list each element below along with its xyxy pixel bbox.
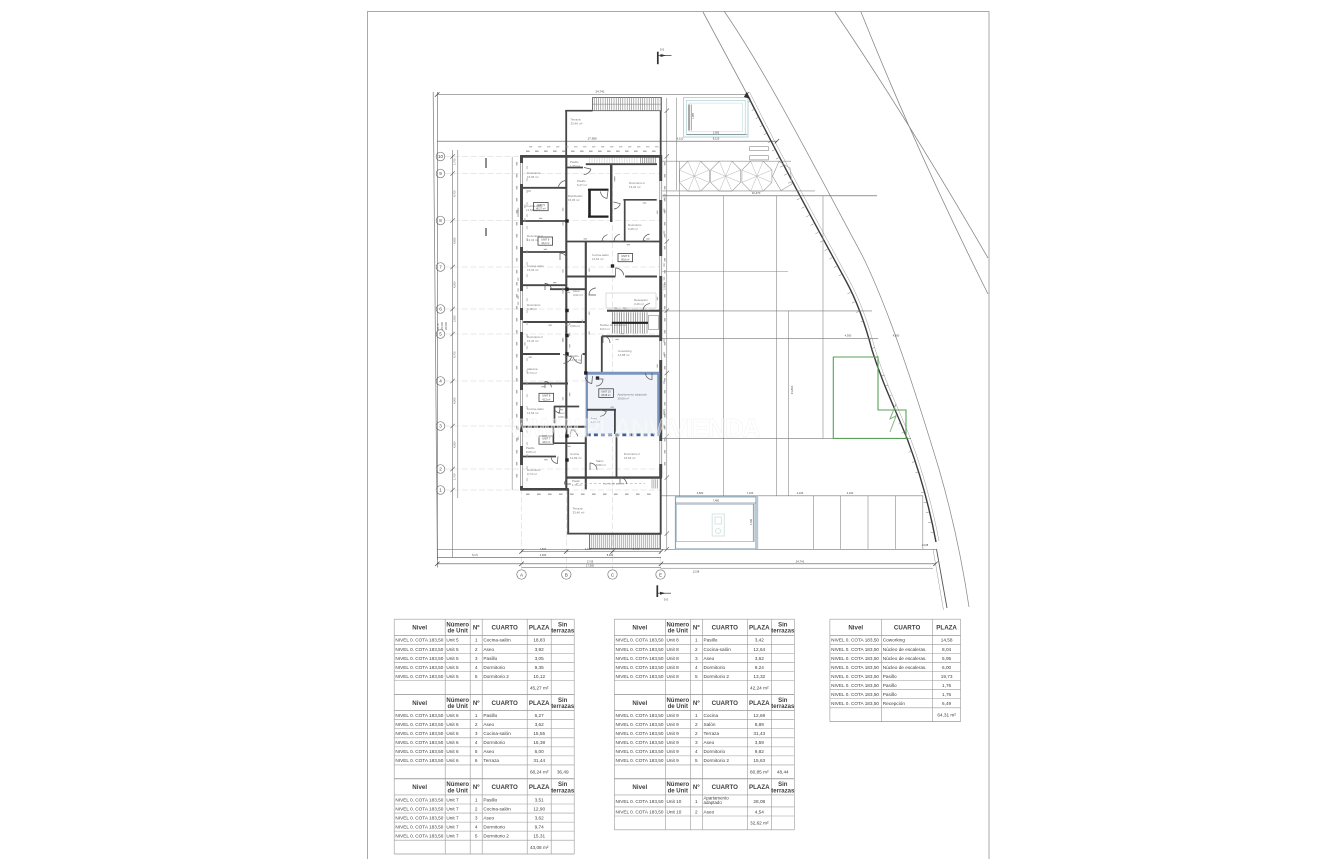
svg-text:de Unit: de Unit [668,629,688,635]
svg-text:NIVEL 0. COTA 183,50: NIVEL 0. COTA 183,50 [395,722,443,727]
svg-text:PLAZA: PLAZA [529,700,550,707]
svg-text:31,44: 31,44 [533,758,545,763]
svg-text:UNIT 5: UNIT 5 [537,203,546,207]
svg-text:3,62: 3,62 [535,722,545,727]
svg-text:8,04: 8,04 [942,647,952,652]
svg-text:15,31: 15,31 [533,833,545,838]
svg-text:Nº: Nº [693,784,700,791]
svg-text:9,35: 9,35 [535,665,545,670]
svg-text:8,89: 8,89 [755,722,765,727]
svg-text:24,741: 24,741 [595,90,605,94]
svg-text:1: 1 [695,713,698,718]
svg-text:2: 2 [695,731,698,736]
svg-text:64,31 m²: 64,31 m² [937,713,956,718]
svg-text:3,42: 3,42 [755,638,765,643]
svg-text:4,300: 4,300 [845,333,852,337]
svg-text:terrazas: terrazas [551,629,575,635]
svg-text:3: 3 [439,424,442,429]
svg-text:NIVEL 0. COTA 183,50: NIVEL 0. COTA 183,50 [395,674,443,679]
svg-text:1,700: 1,700 [453,158,457,165]
svg-text:44,2 m²: 44,2 m² [541,242,549,245]
svg-text:Núcleo de escaleras.: Núcleo de escaleras. [883,647,927,652]
svg-text:4: 4 [695,665,698,670]
svg-text:13,32 m²: 13,32 m² [629,185,640,189]
svg-text:Unit 6: Unit 6 [446,722,459,727]
svg-text:Aseo: Aseo [483,749,494,754]
svg-text:Unit 9: Unit 9 [667,722,680,727]
svg-text:UNIT 9: UNIT 9 [621,254,630,258]
svg-text:Unit 9: Unit 9 [667,731,680,736]
svg-text:15,05 m²: 15,05 m² [568,198,579,202]
svg-text:12,69: 12,69 [753,713,765,718]
svg-text:4,300: 4,300 [540,553,547,557]
svg-text:6,110: 6,110 [677,136,684,140]
svg-text:Pasillo: Pasillo [483,713,497,718]
svg-text:5: 5 [695,758,698,763]
svg-text:NIVEL 0. COTA 183,50: NIVEL 0. COTA 183,50 [616,713,664,718]
svg-text:Nº: Nº [473,625,480,632]
svg-text:Sin: Sin [778,782,788,788]
svg-text:42,2 m²: 42,2 m² [542,398,550,401]
svg-text:CUARTO: CUARTO [712,784,739,791]
svg-text:1: 1 [475,797,478,802]
svg-text:8,89 m²: 8,89 m² [596,463,606,467]
svg-text:15,63: 15,63 [753,758,765,763]
svg-text:2: 2 [475,722,478,727]
svg-text:NIVEL 0. COTA 183,50: NIVEL 0. COTA 183,50 [831,674,879,679]
svg-text:12,58: 12,58 [693,569,700,573]
svg-text:45,27 m²: 45,27 m² [530,685,549,690]
svg-text:6,49: 6,49 [942,701,952,706]
svg-text:Aseo: Aseo [704,656,715,661]
svg-text:12,69 m²: 12,69 m² [570,456,581,460]
svg-text:NIVEL 0. COTA 183,50: NIVEL 0. COTA 183,50 [395,749,443,754]
svg-text:5: 5 [475,674,478,679]
svg-text:Unit 9: Unit 9 [667,740,680,745]
svg-text:UNIT 6: UNIT 6 [541,237,550,241]
svg-text:7,480: 7,480 [713,500,720,503]
svg-text:Aseo: Aseo [483,815,494,820]
svg-text:Número: Número [446,623,469,629]
svg-text:Unit 5: Unit 5 [446,647,459,652]
svg-text:Unit 7: Unit 7 [446,806,459,811]
svg-text:45,27 m²: 45,27 m² [536,208,546,211]
svg-text:4: 4 [439,379,442,384]
svg-text:Dormitorio: Dormitorio [483,824,505,829]
svg-text:33,46 m²: 33,46 m² [573,510,585,514]
svg-text:15,06 m²: 15,06 m² [527,175,538,179]
svg-text:9,74: 9,74 [535,824,545,829]
svg-text:NIVEL 0. COTA 183,50: NIVEL 0. COTA 183,50 [395,638,443,643]
svg-text:4,500: 4,500 [453,397,457,404]
svg-text:28,08: 28,08 [753,799,765,804]
svg-text:4,500: 4,500 [697,491,704,495]
svg-text:4,54: 4,54 [755,809,765,814]
svg-text:Unit 5: Unit 5 [446,656,459,661]
svg-text:Terraza: Terraza [704,731,720,736]
svg-text:adaptado: adaptado [704,800,723,805]
svg-text:1,76: 1,76 [942,683,952,688]
svg-text:24,741: 24,741 [796,559,805,563]
svg-text:Unit 5: Unit 5 [446,665,459,670]
svg-text:3,62 m²: 3,62 m² [573,293,583,297]
svg-text:B: B [565,572,568,577]
svg-text:Pasillo: Pasillo [883,674,897,679]
svg-text:1,995: 1,995 [692,112,695,119]
svg-text:14,58 m²: 14,58 m² [618,353,629,357]
svg-text:1: 1 [475,638,478,643]
svg-text:NIVEL 0. COTA 183,50: NIVEL 0. COTA 183,50 [395,815,443,820]
svg-text:NIVEL 0. COTA 183,50: NIVEL 0. COTA 183,50 [616,722,664,727]
svg-text:NIVEL 0. COTA 183,50: NIVEL 0. COTA 183,50 [616,638,664,643]
svg-text:PLAZA: PLAZA [749,784,770,791]
svg-text:NIVEL 0. COTA 183,50: NIVEL 0. COTA 183,50 [831,665,879,670]
svg-text:8,400: 8,400 [607,553,614,557]
svg-text:Salón: Salón [704,722,716,727]
svg-text:Dormitorio: Dormitorio [704,749,726,754]
svg-text:Sin: Sin [778,623,788,629]
svg-text:5: 5 [695,674,698,679]
svg-text:Pasillo: Pasillo [883,683,897,688]
svg-text:NIVEL 0. COTA 183,50: NIVEL 0. COTA 183,50 [395,731,443,736]
svg-text:NIVEL 0. COTA 183,50: NIVEL 0. COTA 183,50 [616,809,664,814]
svg-text:Nivel: Nivel [848,625,863,632]
svg-text:Unit 8: Unit 8 [667,656,680,661]
svg-text:Dormitorio 2: Dormitorio 2 [704,758,730,763]
svg-text:Unit 10: Unit 10 [667,799,682,804]
svg-text:Unit 8: Unit 8 [667,674,680,679]
svg-text:13,32 m²: 13,32 m² [527,238,538,242]
svg-text:1: 1 [439,488,442,493]
svg-text:4,700: 4,700 [453,351,457,358]
svg-text:Terraza: Terraza [483,758,499,763]
svg-text:Dormitorio: Dormitorio [704,665,726,670]
svg-text:NIVEL 0. COTA 183,50: NIVEL 0. COTA 183,50 [616,674,664,679]
svg-text:Número: Número [446,782,469,788]
svg-text:1: 1 [475,713,478,718]
svg-text:Aseo: Aseo [704,809,715,814]
svg-text:3,05: 3,05 [535,656,545,661]
svg-text:9,82: 9,82 [755,749,765,754]
svg-text:4,500: 4,500 [893,333,900,337]
svg-text:9: 9 [439,171,442,176]
svg-text:2,100: 2,100 [847,491,854,495]
svg-text:Cocina-salón: Cocina-salón [483,638,511,643]
svg-text:NIVEL 0. COTA 183,50: NIVEL 0. COTA 183,50 [831,638,879,643]
svg-text:Núcleo de escaleras.: Núcleo de escaleras. [883,665,927,670]
svg-text:WWW.PLANVIVIENDA: WWW.PLANVIVIENDA [509,413,761,443]
svg-text:Nivel: Nivel [632,700,647,707]
svg-text:8,05 m²: 8,05 m² [526,450,536,454]
svg-text:3: 3 [475,731,478,736]
svg-text:6: 6 [439,307,442,312]
svg-text:Pasillo: Pasillo [483,656,497,661]
svg-text:Dormitorio: Dormitorio [483,665,505,670]
svg-text:CUARTO: CUARTO [712,700,739,707]
svg-text:4: 4 [475,824,478,829]
svg-text:Número: Número [666,782,689,788]
svg-text:29,546: 29,546 [440,322,444,330]
svg-text:1,76: 1,76 [942,692,952,697]
svg-text:8,110: 8,110 [713,136,720,140]
svg-text:15,55: 15,55 [533,731,545,736]
svg-text:Unit 6: Unit 6 [446,740,459,745]
svg-text:Unit 7: Unit 7 [446,833,459,838]
svg-text:NIVEL 0. COTA 183,50: NIVEL 0. COTA 183,50 [616,647,664,652]
svg-text:10: 10 [438,154,444,159]
svg-text:4,650: 4,650 [453,237,457,244]
svg-text:NIVEL 0. COTA 183,50: NIVEL 0. COTA 183,50 [616,749,664,754]
svg-text:5-5: 5-5 [664,598,668,602]
svg-text:de Unit: de Unit [448,788,468,794]
svg-text:Nivel: Nivel [632,625,647,632]
svg-text:3,900: 3,900 [713,132,720,135]
svg-text:3: 3 [695,740,698,745]
svg-text:14,73 m²: 14,73 m² [570,358,581,362]
svg-text:80,85 m²: 80,85 m² [750,770,769,775]
svg-text:3,59: 3,59 [755,740,765,745]
svg-text:NIVEL 0. COTA 183,50: NIVEL 0. COTA 183,50 [616,665,664,670]
svg-text:2,100: 2,100 [797,491,804,495]
svg-text:6: 6 [475,758,478,763]
svg-text:terrazas: terrazas [551,788,575,794]
svg-text:Cocina: Cocina [704,713,719,718]
svg-text:36,49: 36,49 [557,770,569,775]
svg-text:15,31 m²: 15,31 m² [527,339,538,343]
svg-text:17,05: 17,05 [587,559,594,563]
svg-text:8: 8 [439,218,442,223]
svg-text:48,44: 48,44 [777,770,789,775]
svg-text:Nº: Nº [693,700,700,707]
svg-text:3,51: 3,51 [535,797,545,802]
svg-text:Aseo: Aseo [704,740,715,745]
svg-text:Nivel: Nivel [412,700,427,707]
svg-text:Unit 6: Unit 6 [446,731,459,736]
svg-text:NIVEL 0. COTA 183,50: NIVEL 0. COTA 183,50 [616,740,664,745]
svg-text:4: 4 [475,740,478,745]
svg-text:2: 2 [695,809,698,814]
svg-text:4: 4 [475,665,478,670]
svg-text:Unit 8: Unit 8 [667,638,680,643]
svg-text:16,38: 16,38 [533,740,545,745]
svg-text:3,92: 3,92 [535,647,545,652]
svg-text:Nivel: Nivel [412,784,427,791]
svg-text:NIVEL 0. COTA 183,50: NIVEL 0. COTA 183,50 [395,740,443,745]
svg-text:NIVEL 0. COTA 183,50: NIVEL 0. COTA 183,50 [395,797,443,802]
svg-text:NIVEL 0. COTA 183,50: NIVEL 0. COTA 183,50 [616,731,664,736]
svg-text:2: 2 [695,722,698,727]
svg-text:3,62: 3,62 [755,656,765,661]
svg-text:NIVEL 0. COTA 183,50: NIVEL 0. COTA 183,50 [395,713,443,718]
svg-text:PLAZA: PLAZA [529,625,550,632]
svg-text:15,63 m²: 15,63 m² [624,456,635,460]
svg-text:PLAZA: PLAZA [749,700,770,707]
svg-text:28,08 m²: 28,08 m² [601,394,611,397]
svg-text:de Unit: de Unit [448,629,468,635]
svg-text:2: 2 [475,806,478,811]
svg-text:12,64: 12,64 [753,647,765,652]
svg-text:6,27: 6,27 [535,713,545,718]
svg-text:Sin: Sin [558,698,568,704]
svg-text:Sin: Sin [558,782,568,788]
svg-text:31,43: 31,43 [753,731,765,736]
svg-text:4,300: 4,300 [750,518,753,525]
svg-text:Unit 6: Unit 6 [446,713,459,718]
svg-text:NIVEL 0. COTA 183,50: NIVEL 0. COTA 183,50 [395,647,443,652]
svg-text:NIVEL 0. COTA 183,50: NIVEL 0. COTA 183,50 [395,758,443,763]
svg-text:18,83: 18,83 [533,638,545,643]
svg-text:CUARTO: CUARTO [894,625,921,632]
svg-text:NIVEL 0. COTA 183,50: NIVEL 0. COTA 183,50 [831,701,879,706]
svg-text:4: 4 [695,749,698,754]
svg-text:3,62: 3,62 [535,815,545,820]
svg-text:Unit 9: Unit 9 [667,758,680,763]
svg-text:NIVEL 0. COTA 183,50: NIVEL 0. COTA 183,50 [831,656,879,661]
svg-text:5: 5 [475,833,478,838]
svg-text:2: 2 [475,647,478,652]
svg-text:1,700: 1,700 [453,473,457,480]
svg-text:Nivel: Nivel [412,625,427,632]
svg-text:Nº: Nº [693,625,700,632]
svg-text:7: 7 [439,265,442,270]
svg-text:Unit 7: Unit 7 [446,797,459,802]
svg-text:9,35 m²: 9,35 m² [628,227,638,231]
svg-text:43,08 m²: 43,08 m² [530,845,549,850]
svg-text:Pasillo: Pasillo [704,638,718,643]
svg-text:PLAZA: PLAZA [936,625,957,632]
svg-text:terrazas: terrazas [771,788,795,794]
svg-text:Núcleo de escaleras.: Núcleo de escaleras. [883,656,927,661]
svg-text:Nivel: Nivel [632,784,647,791]
svg-text:28,506: 28,506 [444,322,448,330]
svg-text:de Unit: de Unit [448,704,468,710]
svg-text:1,75 m²: 1,75 m² [570,164,580,168]
svg-text:3: 3 [475,656,478,661]
svg-text:Número: Número [446,698,469,704]
svg-text:1: 1 [695,799,698,804]
svg-text:5: 5 [439,332,442,337]
svg-text:5: 5 [475,749,478,754]
svg-text:Unit 10: Unit 10 [667,809,682,814]
svg-text:9,18 m²: 9,18 m² [527,307,537,311]
svg-text:7,100: 7,100 [747,491,754,495]
svg-text:Dormitorio 2: Dormitorio 2 [483,674,509,679]
svg-text:Unit 9: Unit 9 [667,749,680,754]
svg-text:Cocina-salón: Cocina-salón [704,647,732,652]
svg-text:14,58: 14,58 [941,638,953,643]
svg-text:terrazas: terrazas [771,629,795,635]
svg-text:Aseo: Aseo [483,647,494,652]
svg-text:Dormitorio 2: Dormitorio 2 [704,674,730,679]
svg-text:10,12: 10,12 [533,674,545,679]
svg-text:68,24 m²: 68,24 m² [530,770,549,775]
svg-text:12,90: 12,90 [533,806,545,811]
svg-text:UNIT 8: UNIT 8 [542,394,551,398]
svg-text:9,74 m²: 9,74 m² [527,472,537,476]
svg-text:33,46 m²: 33,46 m² [571,122,583,126]
svg-text:5,1½: 5,1½ [472,553,479,557]
svg-text:NIVEL 0. COTA 183,50: NIVEL 0. COTA 183,50 [395,833,443,838]
svg-text:28,08 m²: 28,08 m² [618,396,629,400]
svg-text:Número: Número [666,623,689,629]
svg-text:NIVEL 0. COTA 183,50: NIVEL 0. COTA 183,50 [831,647,879,652]
svg-text:NIVEL 0. COTA 183,50: NIVEL 0. COTA 183,50 [395,824,443,829]
svg-text:E: E [659,572,662,577]
svg-text:Cocina-salón: Cocina-salón [483,806,511,811]
svg-text:31,860: 31,860 [790,385,794,394]
svg-text:Recepción: Recepción [883,701,906,706]
svg-text:32,62 m²: 32,62 m² [750,821,769,826]
svg-text:2,500: 2,500 [453,315,457,322]
svg-text:NIVEL 0. COTA 183,50: NIVEL 0. COTA 183,50 [831,692,879,697]
svg-text:Unit 9: Unit 9 [667,713,680,718]
svg-text:Sin: Sin [778,698,788,704]
svg-text:80,8 m²: 80,8 m² [621,259,629,262]
svg-text:15,04 m²: 15,04 m² [527,268,538,272]
svg-text:Unit 8: Unit 8 [667,665,680,670]
svg-text:4,700: 4,700 [453,190,457,197]
svg-text:Unit 5: Unit 5 [446,674,459,679]
svg-text:CUARTO: CUARTO [712,625,739,632]
svg-text:NIVEL 0. COTA 183,50: NIVEL 0. COTA 183,50 [616,656,664,661]
svg-text:CUARTO: CUARTO [492,784,519,791]
svg-text:4,200: 4,200 [453,281,457,288]
svg-text:5-5: 5-5 [660,48,664,52]
svg-text:Nº: Nº [473,784,480,791]
svg-text:3: 3 [695,656,698,661]
svg-text:42,24 m²: 42,24 m² [750,685,769,690]
svg-text:Coworking: Coworking [883,638,906,643]
svg-text:NIVEL 0. COTA 183,50: NIVEL 0. COTA 183,50 [395,806,443,811]
svg-text:Unit 6: Unit 6 [446,758,459,763]
svg-text:NIVEL 0. COTA 183,50: NIVEL 0. COTA 183,50 [395,665,443,670]
svg-text:Cocina-salón: Cocina-salón [483,731,511,736]
svg-text:Dormitorio: Dormitorio [483,740,505,745]
svg-text:Unit 8: Unit 8 [667,647,680,652]
svg-text:PLAZA: PLAZA [529,784,550,791]
svg-text:2: 2 [695,647,698,652]
svg-text:3,59 m²: 3,59 m² [570,324,580,328]
svg-text:Sin: Sin [558,623,568,629]
svg-text:Nº: Nº [473,700,480,707]
svg-text:10,470: 10,470 [752,191,761,195]
svg-text:8,04 m²: 8,04 m² [600,327,610,331]
svg-text:6,00: 6,00 [535,749,545,754]
svg-text:CUARTO: CUARTO [492,700,519,707]
svg-text:NIVEL 0. COTA 183,50: NIVEL 0. COTA 183,50 [616,758,664,763]
svg-text:de Unit: de Unit [668,788,688,794]
svg-text:Pasillo: Pasillo [883,692,897,697]
svg-text:terrazas: terrazas [771,704,795,710]
svg-text:Aseo: Aseo [483,722,494,727]
svg-text:9,24: 9,24 [755,665,765,670]
svg-text:28,74: 28,74 [436,323,440,330]
svg-text:3,40 m²: 3,40 m² [634,302,644,306]
svg-text:17,380: 17,380 [587,136,597,140]
svg-text:12,64 m²: 12,64 m² [592,257,603,261]
svg-text:Dormitorio 2: Dormitorio 2 [483,833,509,838]
svg-text:3: 3 [475,815,478,820]
svg-text:6,00: 6,00 [942,665,952,670]
svg-text:Pasillo: Pasillo [483,797,497,802]
svg-text:Unit 7: Unit 7 [446,824,459,829]
svg-text:NIVEL 0. COTA 183,50: NIVEL 0. COTA 183,50 [616,799,664,804]
svg-text:CUARTO: CUARTO [492,625,519,632]
svg-text:2,74 m²: 2,74 m² [527,371,537,375]
svg-text:6,27 m²: 6,27 m² [577,183,587,187]
svg-text:Unit 5: Unit 5 [446,638,459,643]
svg-text:4,300: 4,300 [453,441,457,448]
